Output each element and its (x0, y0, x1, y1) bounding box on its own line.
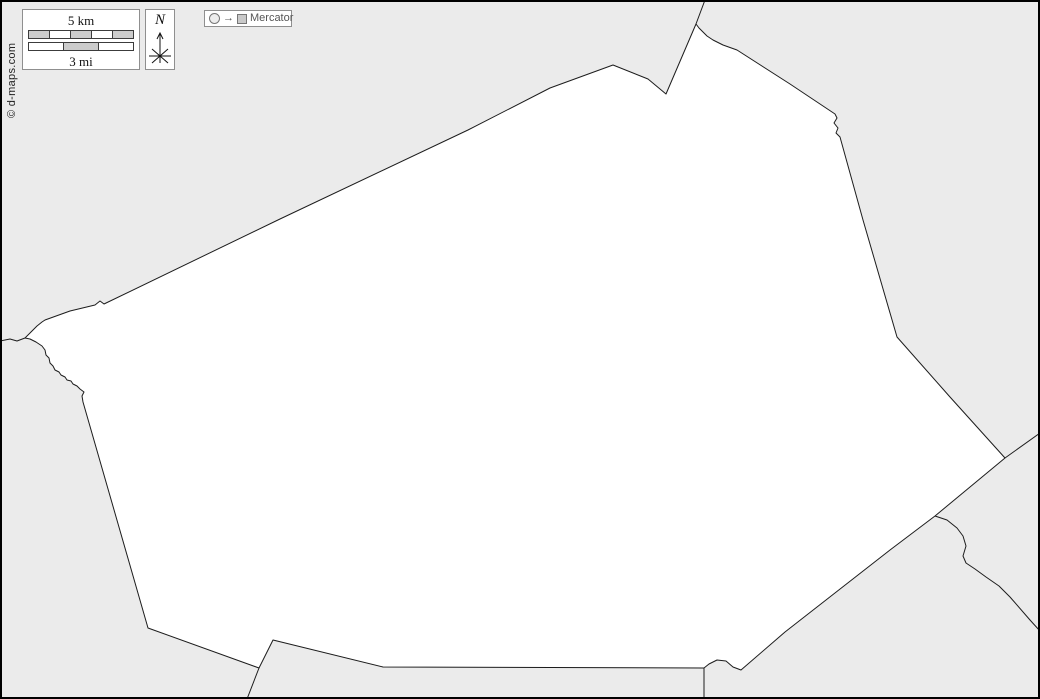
scale-segment-white (50, 31, 71, 38)
scale-segment-white (99, 43, 133, 50)
scale-segment-gray (64, 43, 99, 50)
scale-segment-gray (71, 31, 92, 38)
globe-circle-icon (209, 13, 220, 24)
scale-km-label: 5 km (23, 14, 139, 27)
scale-bar-km (28, 30, 134, 39)
scale-mi-label: 3 mi (23, 55, 139, 68)
outline-map (0, 0, 1040, 699)
copyright-text: © d-maps.com (6, 43, 18, 118)
projection-chip: → Mercator (204, 10, 292, 27)
compass-north-label: N (146, 12, 174, 29)
scale-segment-white (29, 43, 64, 50)
projected-square-icon (237, 14, 247, 24)
scale-bar-mi (28, 42, 134, 51)
projection-label: Mercator (250, 13, 293, 24)
arrow-right-icon: → (223, 13, 234, 24)
scale-segment-white (92, 31, 113, 38)
scale-segment-gray (113, 31, 133, 38)
compass: N (145, 9, 175, 70)
scale-bar: 5 km 3 mi (22, 9, 140, 70)
scale-segment-gray (29, 31, 50, 38)
map-canvas: © d-maps.com 5 km 3 mi N → Mercator (0, 0, 1040, 699)
north-arrow-icon (147, 29, 173, 67)
